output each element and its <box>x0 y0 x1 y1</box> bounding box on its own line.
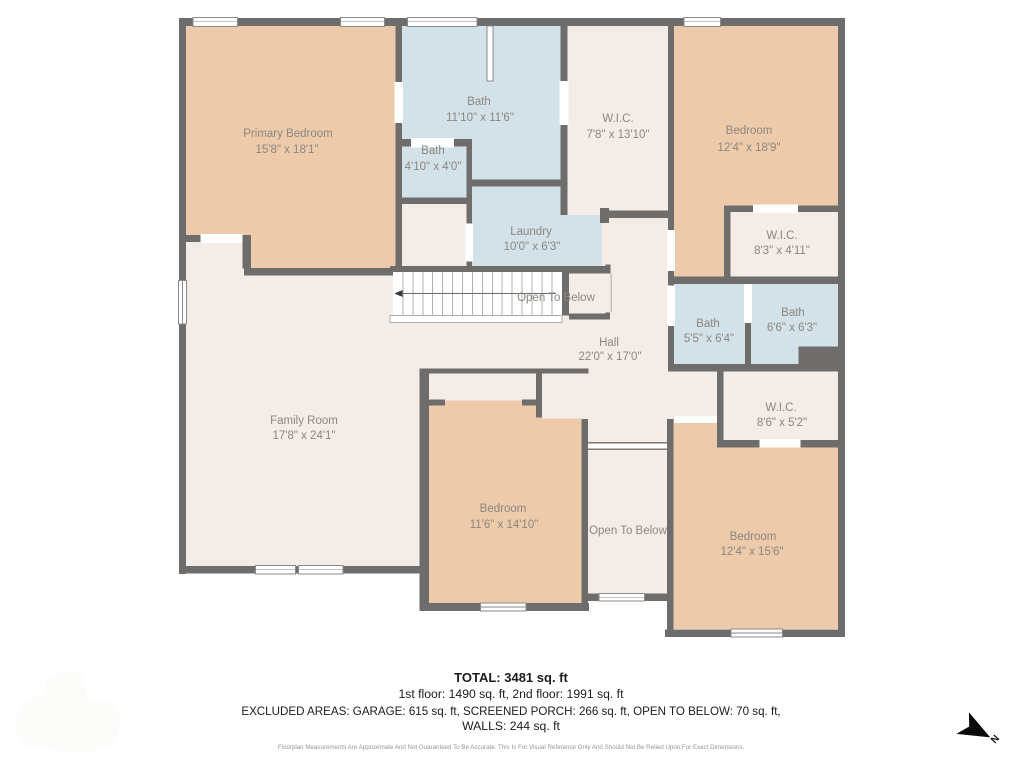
svg-text:Family Room: Family Room <box>270 415 338 427</box>
svg-text:10'0" x 6'3": 10'0" x 6'3" <box>504 241 561 253</box>
svg-text:8'6" x 5'2": 8'6" x 5'2" <box>757 417 807 429</box>
svg-text:W.I.C.: W.I.C. <box>602 113 633 125</box>
svg-text:12'4" x 15'6": 12'4" x 15'6" <box>720 546 783 558</box>
svg-text:WALLS: 244 sq. ft: WALLS: 244 sq. ft <box>462 719 560 733</box>
svg-text:12'4" x 18'9": 12'4" x 18'9" <box>717 142 780 154</box>
svg-text:4'10" x 4'0": 4'10" x 4'0" <box>405 161 462 173</box>
svg-text:11'6" x 14'10": 11'6" x 14'10" <box>470 519 539 531</box>
svg-text:11'10" x 11'6": 11'10" x 11'6" <box>446 112 514 124</box>
svg-text:Bath: Bath <box>421 145 445 157</box>
svg-text:7'8" x 13'10": 7'8" x 13'10" <box>586 129 649 141</box>
svg-text:Bedroom: Bedroom <box>730 531 777 543</box>
svg-text:W.I.C.: W.I.C. <box>765 402 796 414</box>
svg-text:Hall: Hall <box>599 337 619 349</box>
svg-text:1st floor: 1490 sq. ft, 2nd fl: 1st floor: 1490 sq. ft, 2nd floor: 1991 … <box>399 687 625 701</box>
svg-text:Bedroom: Bedroom <box>480 503 527 515</box>
svg-text:17'8" x 24'1": 17'8" x 24'1" <box>272 430 335 442</box>
svg-text:5'5" x 6'4": 5'5" x 6'4" <box>684 333 734 345</box>
svg-text:Open To Below: Open To Below <box>589 525 667 537</box>
svg-text:22'0" x 17'0": 22'0" x 17'0" <box>578 351 641 363</box>
svg-text:Laundry: Laundry <box>510 226 552 238</box>
svg-text:Bath: Bath <box>467 96 491 108</box>
svg-text:6'6" x 6'3": 6'6" x 6'3" <box>767 322 817 334</box>
svg-text:W.I.C.: W.I.C. <box>766 230 797 242</box>
svg-text:Bath: Bath <box>696 318 720 330</box>
svg-text:Bath: Bath <box>781 307 805 319</box>
svg-text:Floorplan Measurements Are App: Floorplan Measurements Are Approximate A… <box>278 744 745 751</box>
svg-text:EXCLUDED AREAS: GARAGE: 615 sq: EXCLUDED AREAS: GARAGE: 615 sq. ft, SCRE… <box>241 705 780 718</box>
svg-text:TOTAL: 3481 sq. ft: TOTAL: 3481 sq. ft <box>454 670 568 685</box>
svg-text:15'8" x 18'1": 15'8" x 18'1" <box>255 144 318 156</box>
svg-text:Bedroom: Bedroom <box>726 125 773 137</box>
svg-text:Primary Bedroom: Primary Bedroom <box>243 128 332 140</box>
svg-text:Open To Below: Open To Below <box>517 292 595 304</box>
svg-text:8'3" x 4'11": 8'3" x 4'11" <box>754 245 810 257</box>
